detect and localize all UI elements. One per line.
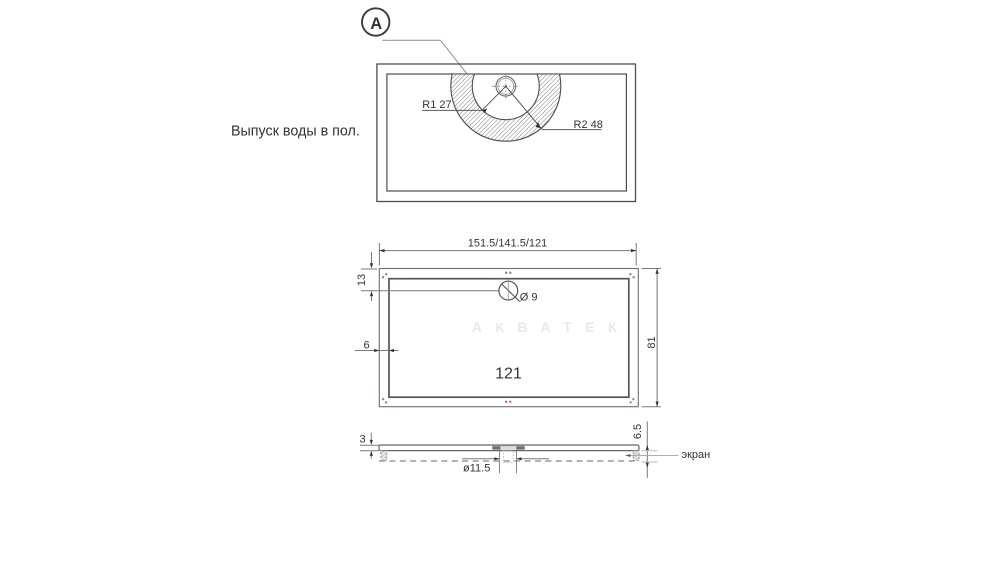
svg-text:13: 13 (356, 274, 368, 286)
svg-text:R2 48: R2 48 (574, 119, 603, 131)
svg-text:81: 81 (646, 336, 658, 348)
svg-text:R1 27: R1 27 (422, 99, 451, 111)
svg-text:АКВАТЕК: АКВАТЕК (472, 319, 630, 335)
svg-text:121: 121 (495, 365, 522, 382)
svg-text:3: 3 (359, 433, 365, 445)
svg-text:6.5: 6.5 (632, 424, 644, 439)
svg-text:6: 6 (363, 340, 369, 352)
svg-text:ø11.5: ø11.5 (463, 462, 490, 474)
svg-text:экран: экран (682, 449, 711, 461)
svg-text:Выпуск воды в пол.: Выпуск воды в пол. (231, 124, 360, 140)
svg-text:A: A (370, 15, 382, 33)
svg-text:Ø 9: Ø 9 (520, 291, 538, 303)
svg-text:151.5/141.5/121: 151.5/141.5/121 (468, 238, 548, 250)
